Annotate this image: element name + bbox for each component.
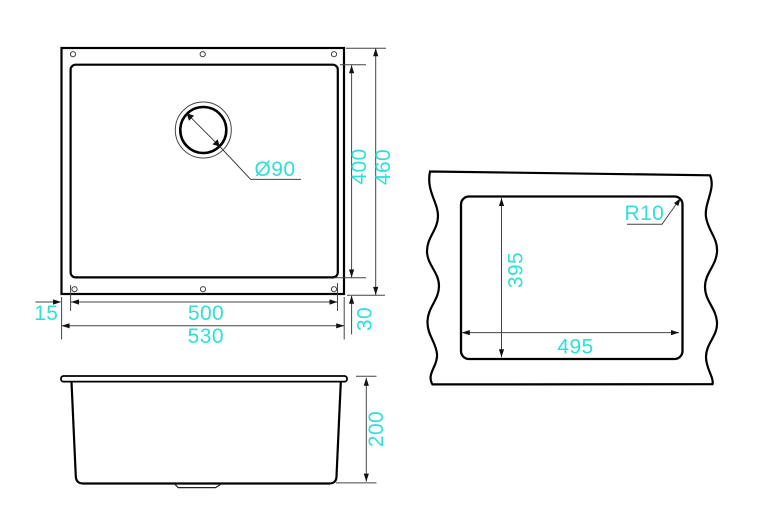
svg-text:Ø90: Ø90 xyxy=(255,158,296,181)
svg-text:200: 200 xyxy=(365,411,388,447)
svg-text:400: 400 xyxy=(348,148,371,184)
svg-text:30: 30 xyxy=(354,307,377,331)
svg-text:R10: R10 xyxy=(625,202,665,225)
svg-text:530: 530 xyxy=(188,325,224,348)
svg-text:15: 15 xyxy=(34,302,58,325)
svg-text:500: 500 xyxy=(188,302,224,325)
svg-text:460: 460 xyxy=(372,149,395,185)
svg-text:495: 495 xyxy=(557,336,593,359)
svg-text:395: 395 xyxy=(505,252,528,288)
